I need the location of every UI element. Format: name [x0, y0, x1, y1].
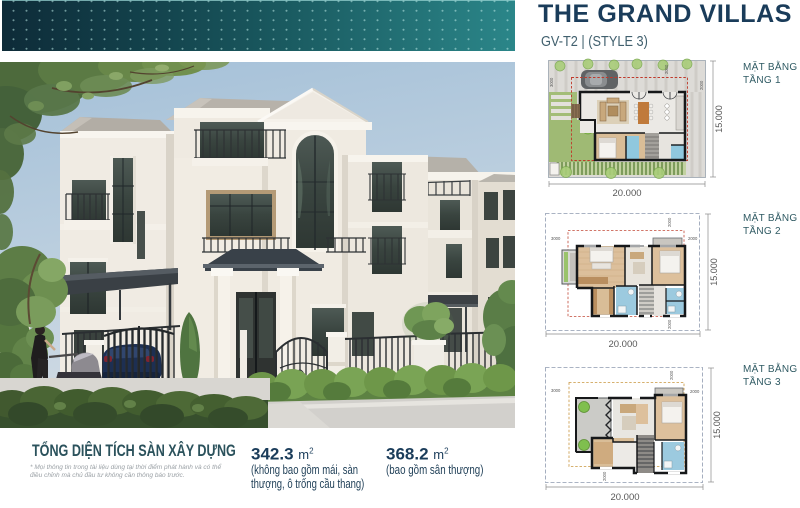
svg-text:2000: 2000: [688, 236, 698, 241]
svg-text:15.000: 15.000: [714, 105, 724, 133]
svg-text:3000: 3000: [551, 388, 561, 393]
svg-text:2000: 2000: [602, 471, 607, 481]
svg-text:15.000: 15.000: [712, 411, 722, 439]
svg-text:20.000: 20.000: [608, 339, 637, 350]
svg-text:3000: 3000: [551, 236, 561, 241]
svg-text:2000: 2000: [699, 80, 704, 90]
svg-text:20.000: 20.000: [610, 492, 639, 503]
svg-text:2000: 2000: [664, 64, 669, 74]
svg-text:2000: 2000: [667, 217, 672, 227]
svg-text:3000: 3000: [549, 77, 554, 87]
svg-text:2000: 2000: [667, 319, 672, 329]
svg-text:2000: 2000: [669, 370, 674, 380]
svg-text:20.000: 20.000: [612, 188, 641, 199]
svg-text:2000: 2000: [690, 389, 700, 394]
svg-text:15.000: 15.000: [709, 258, 719, 286]
